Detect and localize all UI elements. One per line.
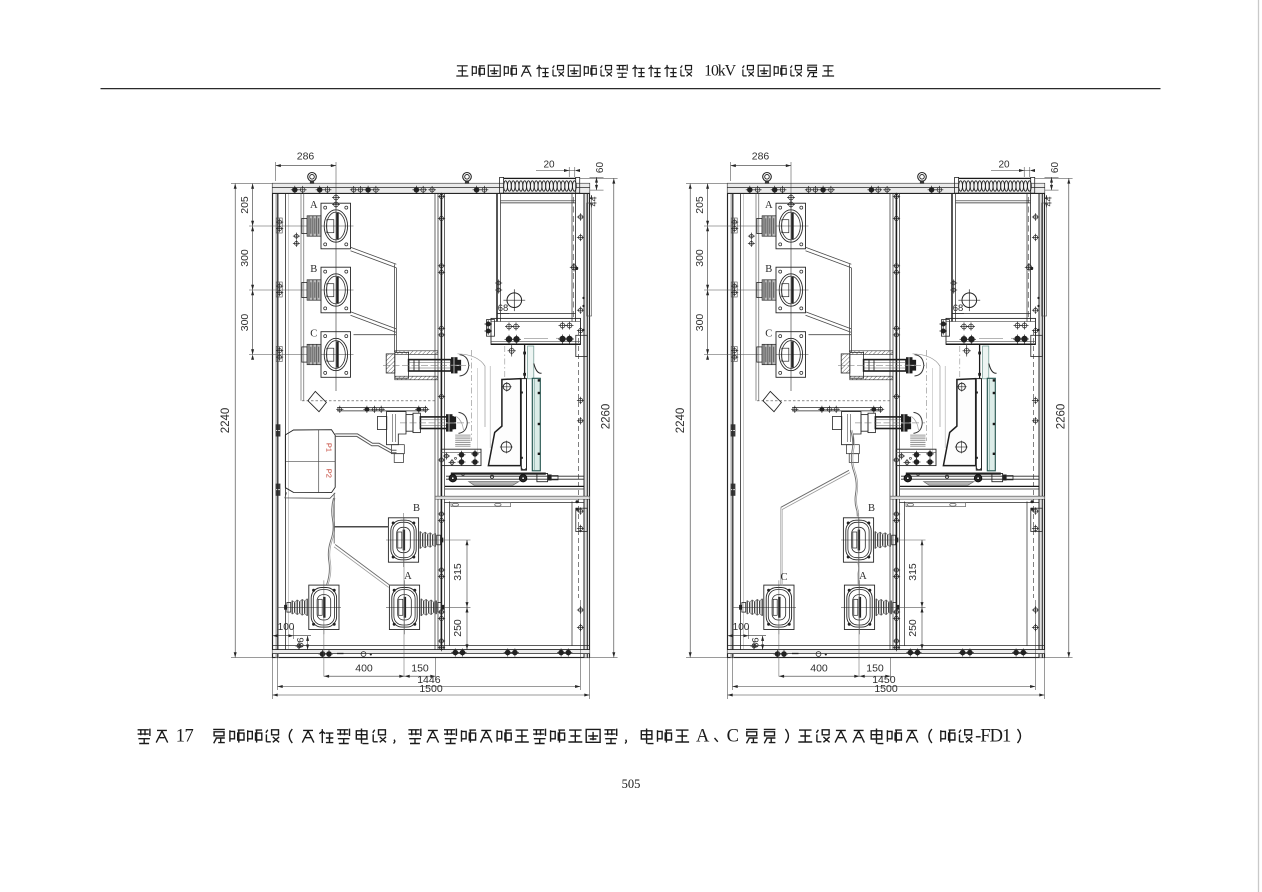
svg-text:1450: 1450 — [872, 674, 896, 686]
svg-text:C: C — [727, 726, 739, 746]
svg-text:-FD1: -FD1 — [975, 726, 1011, 746]
svg-text:P2: P2 — [324, 469, 333, 478]
svg-text:A: A — [696, 726, 710, 746]
svg-text:17: 17 — [176, 726, 194, 746]
svg-text:C: C — [780, 572, 787, 583]
svg-text:505: 505 — [622, 777, 641, 791]
svg-text:10kV: 10kV — [704, 62, 737, 79]
svg-text:1446: 1446 — [417, 674, 441, 686]
svg-text:P1: P1 — [324, 443, 333, 452]
